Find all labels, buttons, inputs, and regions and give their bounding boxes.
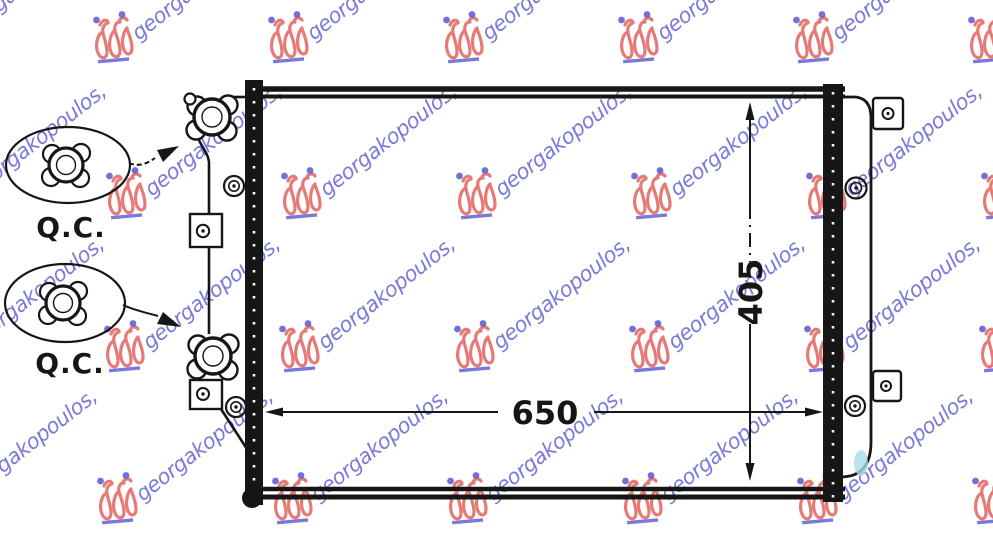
right-side-plate (823, 84, 843, 502)
qc-label-top: Q.C. (36, 211, 106, 244)
height-dimension-label: 405 (732, 259, 770, 326)
screw-head (226, 397, 246, 417)
left-tank (185, 94, 248, 450)
dimension-height: 405 (732, 102, 770, 481)
screw-head (224, 176, 244, 196)
mount-bracket (190, 380, 222, 409)
qc-label-bottom: Q.C. (35, 347, 105, 380)
mount-bracket (190, 214, 222, 247)
mount-bracket (873, 371, 901, 401)
qc-callout-top: Q.C. (6, 127, 179, 244)
catalog-drawing-page: georgakopoulos, georgakopoulos, (0, 0, 993, 553)
outlet-port (188, 335, 239, 380)
screw-head (845, 396, 865, 416)
radiator-diagram: Q.C. Q.C. 650 (0, 0, 993, 553)
callout-arrow (123, 305, 181, 327)
scan-smudge (854, 450, 868, 476)
right-tank (843, 97, 903, 477)
screw-head (846, 178, 867, 199)
mount-bracket (873, 98, 903, 129)
dimension-width: 650 (265, 394, 823, 432)
width-dimension-label: 650 (512, 394, 579, 432)
qc-callout-bottom: Q.C. (5, 264, 181, 380)
inlet-port (185, 94, 238, 141)
callout-arrow (129, 146, 179, 165)
